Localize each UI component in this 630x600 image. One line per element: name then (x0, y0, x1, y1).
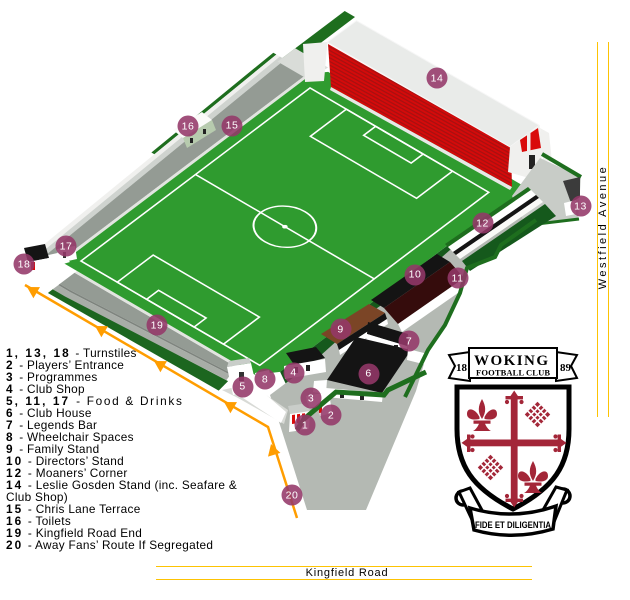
svg-text:FOOTBALL CLUB: FOOTBALL CLUB (476, 368, 550, 378)
svg-text:FIDE ET DILIGENTIA: FIDE ET DILIGENTIA (475, 520, 551, 531)
svg-text:18: 18 (456, 362, 468, 374)
svg-text:89: 89 (560, 362, 572, 374)
